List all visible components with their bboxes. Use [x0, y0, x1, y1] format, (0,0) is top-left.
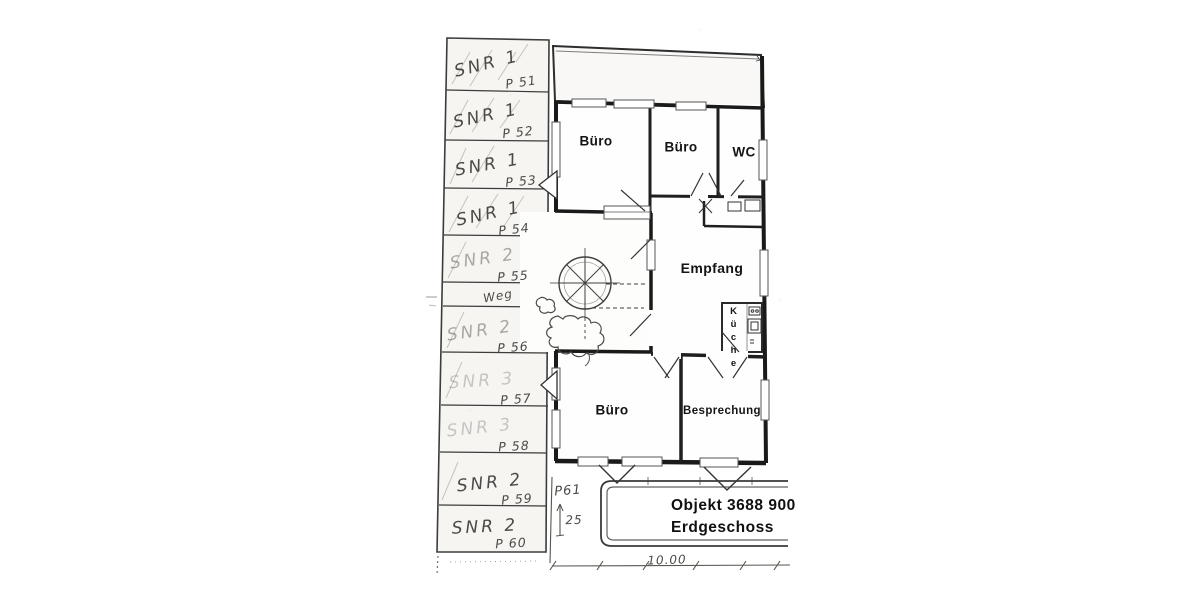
stall-p56-number: P 56 — [497, 338, 529, 355]
floorplan-scan: Büro Büro WC Empfang Küche Büro Besprech… — [0, 0, 1200, 600]
room-label-buero-top-mid: Büro — [664, 140, 697, 155]
plan-title-floor: Erdgeschoss — [671, 519, 774, 537]
room-label-buero-top-left: Büro — [579, 134, 612, 149]
dimension-offset-label: 25 — [565, 513, 583, 528]
dimension-width-label: 10.00 — [647, 552, 687, 567]
room-label-wc: WC — [732, 145, 755, 160]
stall-p55-number: P 55 — [497, 267, 529, 284]
facade-arrow-icons — [599, 465, 751, 490]
stall-p59-number: P 59 — [501, 490, 533, 507]
stall-p60-number: P 60 — [495, 535, 527, 552]
dimension-p61-label: P61 — [554, 483, 582, 500]
room-label-kueche: Küche — [728, 306, 739, 352]
stall-p58-number: P 58 — [498, 438, 530, 455]
floorplan-svg — [0, 0, 1200, 600]
stall-p57-number: P 57 — [500, 390, 532, 407]
stall-p53-number: P 53 — [505, 172, 538, 190]
plan-title-object: Objekt 3688 900 — [671, 497, 796, 515]
room-label-buero-bottom: Büro — [595, 403, 628, 418]
room-label-empfang: Empfang — [681, 260, 744, 276]
room-label-besprechung: Besprechung — [683, 405, 761, 417]
